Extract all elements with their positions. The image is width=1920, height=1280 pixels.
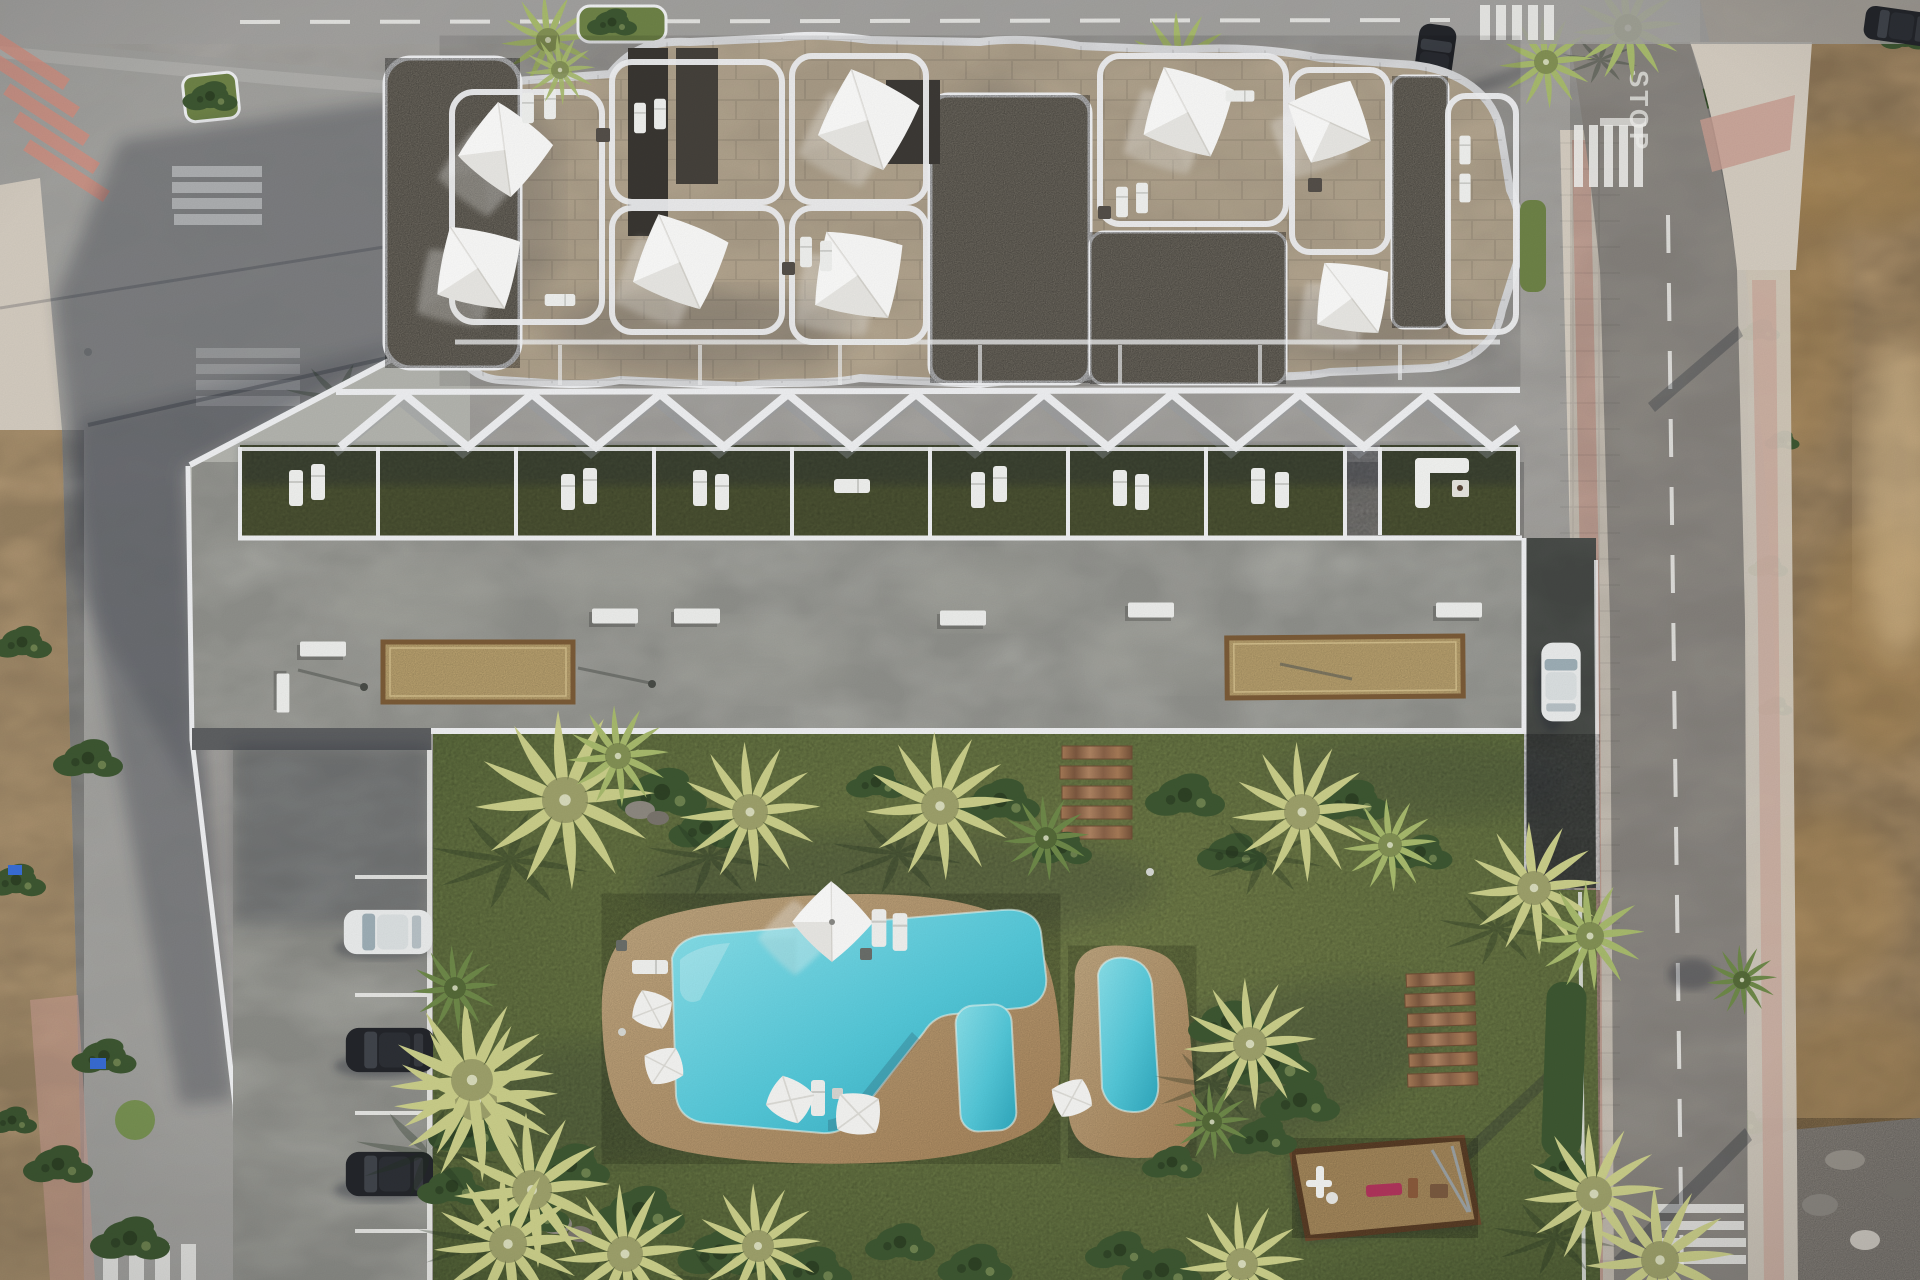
vignette [0, 0, 1920, 1280]
aerial-render: STOP [0, 0, 1920, 1280]
